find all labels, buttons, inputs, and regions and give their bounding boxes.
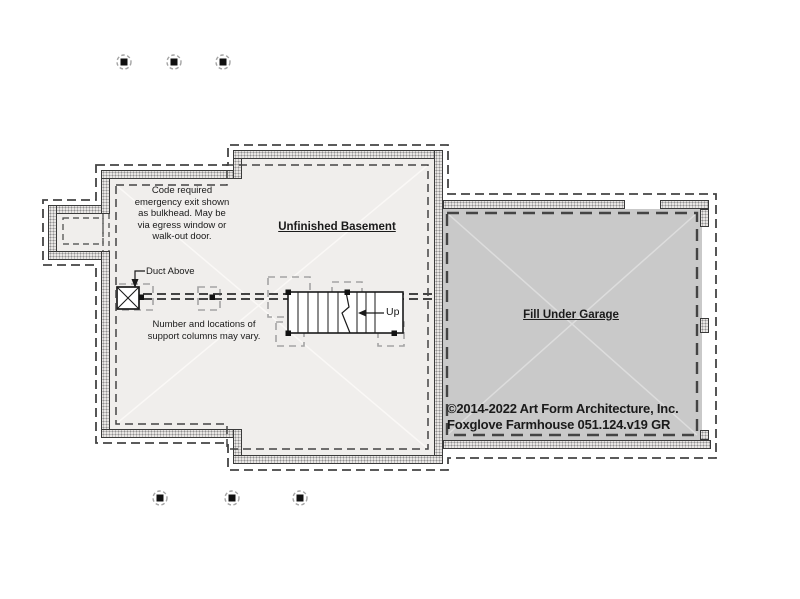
wall-garage-corner-se [700,430,709,440]
wall-top-center [233,150,443,159]
garage-room-label: Fill Under Garage [481,309,661,321]
wall-bottom-bump [233,455,443,464]
wall-bottom-left [101,429,242,438]
wall-garage-pier-east [700,318,709,333]
wall-garage-top-b [660,200,709,209]
wall-top-left [101,170,242,179]
wall-garage-bottom [443,440,711,449]
basement-room-label: Unfinished Basement [252,221,422,233]
wall-garage-top-a [443,200,625,209]
basement-area-center [233,159,434,455]
duct-above-label: Duct Above [146,266,195,278]
support-columns-note: Number and locations of support columns … [128,319,280,342]
copyright-line2: Foxglove Farmhouse 051.124.v19 GR [447,417,670,433]
wall-garage-corner-ne [700,209,709,227]
floor-plan-canvas: Code required emergency exit shown as bu… [0,0,800,599]
copyright-line1: ©2014-2022 Art Form Architecture, Inc. [447,401,679,417]
wall-right-shared [434,150,443,464]
stair-up-label: Up [386,306,399,318]
bulkhead-area [57,214,110,251]
egress-note: Code required emergency exit shown as bu… [126,185,238,243]
wall-left-lower [101,251,110,438]
